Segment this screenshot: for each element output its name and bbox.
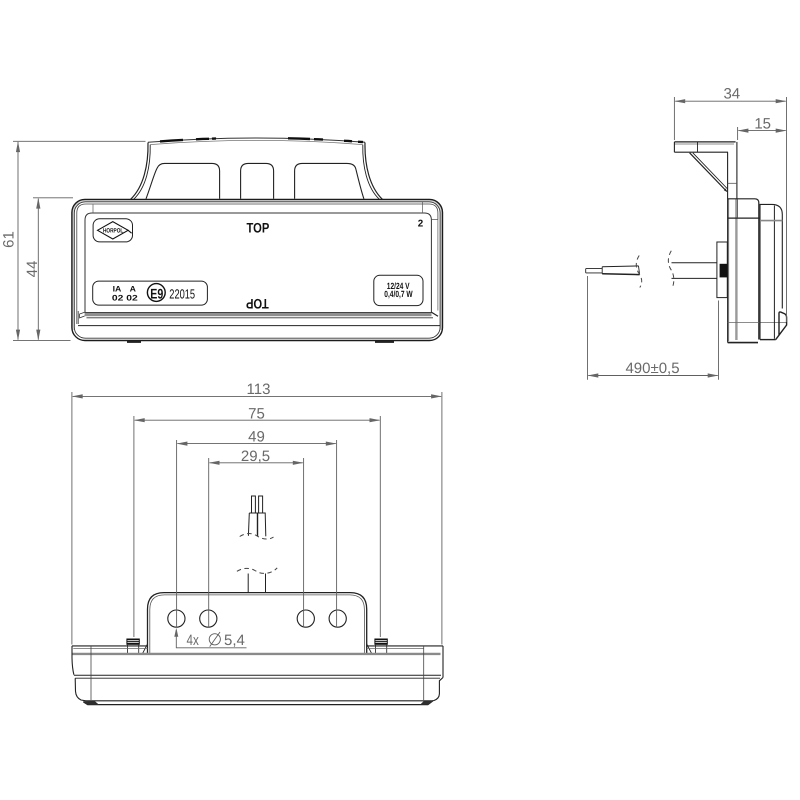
svg-text:29,5: 29,5 — [241, 448, 270, 465]
svg-text:34: 34 — [723, 86, 740, 103]
svg-text:HORPOL: HORPOL — [103, 228, 123, 235]
svg-text:2: 2 — [418, 219, 424, 230]
svg-text:15: 15 — [754, 115, 771, 132]
svg-text:44: 44 — [24, 261, 41, 278]
svg-text:75: 75 — [248, 405, 265, 422]
svg-text:IA: IA — [113, 285, 122, 294]
svg-text:490±0,5: 490±0,5 — [625, 360, 679, 377]
svg-text:0,4/0,7 W: 0,4/0,7 W — [384, 289, 413, 299]
svg-text:5,4: 5,4 — [224, 632, 245, 649]
svg-text:61: 61 — [1, 231, 18, 248]
svg-text:TOP: TOP — [247, 220, 270, 235]
svg-text:22015: 22015 — [169, 286, 195, 301]
svg-text:E9: E9 — [150, 286, 163, 302]
svg-text:02 02: 02 02 — [112, 294, 138, 303]
svg-text:113: 113 — [247, 381, 271, 398]
svg-text:TOP: TOP — [246, 296, 269, 311]
svg-text:4x: 4x — [187, 632, 200, 649]
svg-text:49: 49 — [248, 429, 265, 446]
svg-text:A: A — [130, 285, 137, 294]
